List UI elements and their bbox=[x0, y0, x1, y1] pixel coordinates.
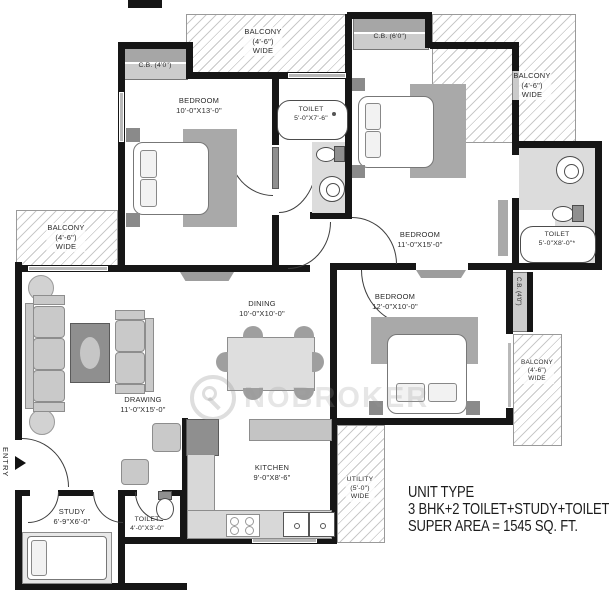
drain-dot bbox=[332, 112, 336, 116]
unit-type-heading: UNIT TYPE bbox=[408, 484, 609, 501]
study-door-right-arc bbox=[93, 492, 123, 523]
wall bbox=[118, 42, 125, 272]
balcony-name: BALCONY bbox=[520, 359, 554, 367]
room-name: TOILET bbox=[294, 106, 328, 115]
wc-tank bbox=[572, 205, 584, 222]
cupboard-shelf bbox=[354, 19, 428, 34]
toilet-wc bbox=[316, 147, 336, 162]
window bbox=[119, 92, 124, 142]
burner bbox=[230, 517, 239, 526]
side-table bbox=[352, 78, 365, 91]
side-table bbox=[126, 213, 140, 227]
sofa-armrest bbox=[115, 310, 145, 320]
room-wide: WIDE bbox=[346, 493, 375, 502]
pillow bbox=[396, 383, 425, 402]
wall bbox=[180, 490, 187, 544]
room-dims: 5'-0"X7'-6" bbox=[294, 115, 328, 124]
door-panel bbox=[416, 270, 466, 278]
dining-chair bbox=[216, 352, 228, 372]
wall bbox=[512, 141, 519, 155]
kitchen-counter bbox=[187, 454, 215, 514]
burner bbox=[245, 517, 254, 526]
pillow bbox=[140, 179, 157, 207]
room-dims: 11'-0"X15'-0" bbox=[120, 405, 165, 415]
side-table bbox=[369, 401, 383, 415]
fridge bbox=[186, 419, 219, 456]
balcony-wide: WIDE bbox=[243, 46, 282, 56]
hall-door-arc bbox=[288, 222, 331, 269]
dining-chair bbox=[243, 388, 263, 400]
room-name: TOILET bbox=[539, 231, 576, 240]
room-name: STUDY bbox=[53, 507, 90, 517]
chair bbox=[152, 423, 181, 452]
wardrobe bbox=[498, 200, 508, 256]
dining-chair bbox=[294, 326, 314, 338]
bedroom2-door-arc bbox=[352, 217, 397, 264]
balcony-label-right: BALCONY (4'-6") WIDE bbox=[520, 359, 554, 384]
wall bbox=[330, 418, 513, 425]
dining-chair bbox=[243, 326, 263, 338]
door-leaf bbox=[272, 147, 279, 189]
room-label-bedroom3: BEDROOM 12'-0"X10'-0" bbox=[372, 292, 418, 311]
pillow bbox=[31, 540, 47, 576]
toilet-floor bbox=[519, 148, 595, 210]
side-table bbox=[466, 401, 480, 415]
wall bbox=[347, 12, 432, 19]
sofa-armrest bbox=[33, 402, 65, 412]
balcony-name: BALCONY bbox=[243, 27, 282, 37]
balcony-label-top-right: BALCONY (4'-6") WIDE bbox=[512, 71, 551, 100]
balcony-dims: (4'-6") bbox=[46, 233, 85, 243]
cupboard-text: C.B. (6'0") bbox=[373, 33, 406, 42]
room-dims: 10'-0"X13'-0" bbox=[176, 106, 222, 116]
wall bbox=[15, 262, 22, 440]
room-label-toilet-small: TOILET 4'-0"X3'-0" bbox=[130, 516, 164, 533]
balcony-label-top-left: BALCONY (4'-6") WIDE bbox=[243, 27, 282, 56]
room-dims: 5'-0"X8'-0"* bbox=[539, 240, 576, 249]
sofa-back bbox=[145, 318, 154, 392]
chair bbox=[121, 459, 149, 485]
sofa-seat bbox=[33, 306, 65, 338]
entry-arrow-icon bbox=[15, 456, 26, 470]
room-name: BEDROOM bbox=[372, 292, 418, 302]
balcony-wide: WIDE bbox=[46, 242, 85, 252]
side-table bbox=[352, 165, 365, 178]
balcony-label-left: BALCONY (4'-6") WIDE bbox=[46, 223, 85, 252]
sofa-seat bbox=[33, 370, 65, 402]
room-name: DINING bbox=[239, 299, 285, 309]
entry-door-arc bbox=[22, 438, 69, 487]
window bbox=[507, 342, 512, 408]
wall bbox=[58, 490, 93, 496]
pillow bbox=[365, 103, 381, 130]
wall bbox=[15, 583, 187, 590]
door-sill bbox=[180, 272, 234, 281]
room-label-kitchen: KITCHEN 9'-0"X8'-6" bbox=[253, 463, 290, 482]
dining-chair bbox=[294, 388, 314, 400]
room-label-toilet-mid: TOILET 5'-0"X7'-6" bbox=[294, 106, 328, 123]
wash-basin bbox=[556, 156, 584, 184]
room-name: DRAWING bbox=[120, 395, 165, 405]
wall bbox=[512, 141, 602, 148]
room-label-study: STUDY 6'-9"X6'-0" bbox=[53, 507, 90, 526]
room-dims: 10'-0"X10'-0" bbox=[239, 309, 285, 319]
room-dims: 12'-0"X10'-0" bbox=[372, 302, 418, 312]
room-dims: 9'-0"X8'-6" bbox=[253, 473, 290, 483]
bed bbox=[387, 334, 467, 414]
room-dims: 11'-0"X15'-0" bbox=[397, 240, 442, 250]
sofa-seat bbox=[115, 320, 145, 352]
balcony-dims: (4'-6") bbox=[243, 37, 282, 47]
unit-info: UNIT TYPE 3 BHK+2 TOILET+STUDY+TOILET SU… bbox=[408, 484, 609, 535]
room-label-utility: UTILITY (5'-0") WIDE bbox=[346, 476, 375, 502]
balcony-dims: (4'-6") bbox=[512, 81, 551, 91]
window bbox=[28, 266, 108, 271]
wall bbox=[512, 198, 519, 263]
wall bbox=[595, 141, 602, 270]
sofa-armrest bbox=[33, 295, 65, 305]
wall bbox=[527, 272, 533, 332]
wall bbox=[125, 537, 187, 544]
room-dims: 6'-9"X6'-0" bbox=[53, 517, 90, 527]
wall bbox=[128, 0, 162, 8]
kitchen-shelf bbox=[249, 419, 332, 441]
room-name: TOILET bbox=[130, 516, 164, 525]
room-name: UTILITY bbox=[346, 476, 375, 485]
wall bbox=[330, 263, 416, 270]
pillow bbox=[428, 383, 457, 402]
balcony-right-area bbox=[513, 334, 562, 446]
balcony-wide: WIDE bbox=[520, 375, 554, 383]
side-table bbox=[126, 128, 140, 142]
wall bbox=[430, 42, 518, 49]
balcony-name: BALCONY bbox=[46, 223, 85, 233]
sofa-seat bbox=[115, 352, 145, 384]
cupboard-label-top-left: C.B. (4'0") bbox=[138, 62, 171, 71]
balcony-dims: (4'-6") bbox=[520, 367, 554, 375]
sofa-armrest bbox=[115, 384, 145, 394]
room-label-bedroom1: BEDROOM 10'-0"X13'-0" bbox=[176, 96, 222, 115]
entry-label: ENTRY bbox=[1, 447, 10, 477]
room-name: BEDROOM bbox=[176, 96, 222, 106]
room-label-bedroom2: BEDROOM 11'-0"X15'-0" bbox=[397, 230, 442, 249]
burner bbox=[230, 526, 239, 535]
wall bbox=[186, 42, 193, 74]
wall bbox=[330, 263, 337, 425]
wash-basin bbox=[319, 176, 345, 202]
pillow bbox=[365, 131, 381, 158]
room-label-dining: DINING 10'-0"X10'-0" bbox=[239, 299, 285, 318]
super-area: SUPER AREA = 1545 SQ. FT. bbox=[408, 518, 609, 535]
sink bbox=[309, 512, 335, 537]
cupboard-label-top-middle: C.B. (6'0") bbox=[373, 33, 406, 42]
unit-configuration: 3 BHK+2 TOILET+STUDY+TOILET bbox=[408, 501, 609, 518]
sink bbox=[283, 512, 309, 537]
toilet-wc bbox=[552, 206, 574, 222]
coffee-table bbox=[70, 323, 110, 383]
room-label-drawing: DRAWING 11'-0"X15'-0" bbox=[120, 395, 165, 414]
wc-tank bbox=[334, 146, 345, 162]
wall bbox=[118, 42, 192, 49]
wall bbox=[468, 263, 602, 270]
floor-plan: BEDROOM 10'-0"X13'-0" TOILET 5'-0"X7'-6"… bbox=[0, 0, 609, 600]
balcony-name: BALCONY bbox=[512, 71, 551, 81]
room-name: KITCHEN bbox=[253, 463, 290, 473]
table-decor bbox=[80, 337, 100, 369]
room-label-toilet-right: TOILET 5'-0"X8'-0"* bbox=[539, 231, 576, 248]
cupboard-text: C.B. (4'0") bbox=[138, 62, 171, 71]
wall bbox=[15, 490, 22, 590]
sofa-seat bbox=[33, 338, 65, 370]
dining-chair bbox=[312, 352, 324, 372]
hob bbox=[226, 514, 260, 537]
burner bbox=[245, 526, 254, 535]
dining-table bbox=[227, 337, 315, 391]
room-dims: (5'-0") bbox=[346, 485, 375, 494]
pillow bbox=[140, 150, 157, 178]
plant bbox=[29, 409, 55, 435]
wall bbox=[272, 215, 279, 272]
room-dims: 4'-0"X3'-0" bbox=[130, 525, 164, 534]
balcony-wide: WIDE bbox=[512, 90, 551, 100]
cupboard-label-right: C.B. (4'0") bbox=[515, 277, 522, 306]
window bbox=[288, 73, 346, 78]
wall bbox=[506, 270, 513, 334]
room-name: BEDROOM bbox=[397, 230, 442, 240]
